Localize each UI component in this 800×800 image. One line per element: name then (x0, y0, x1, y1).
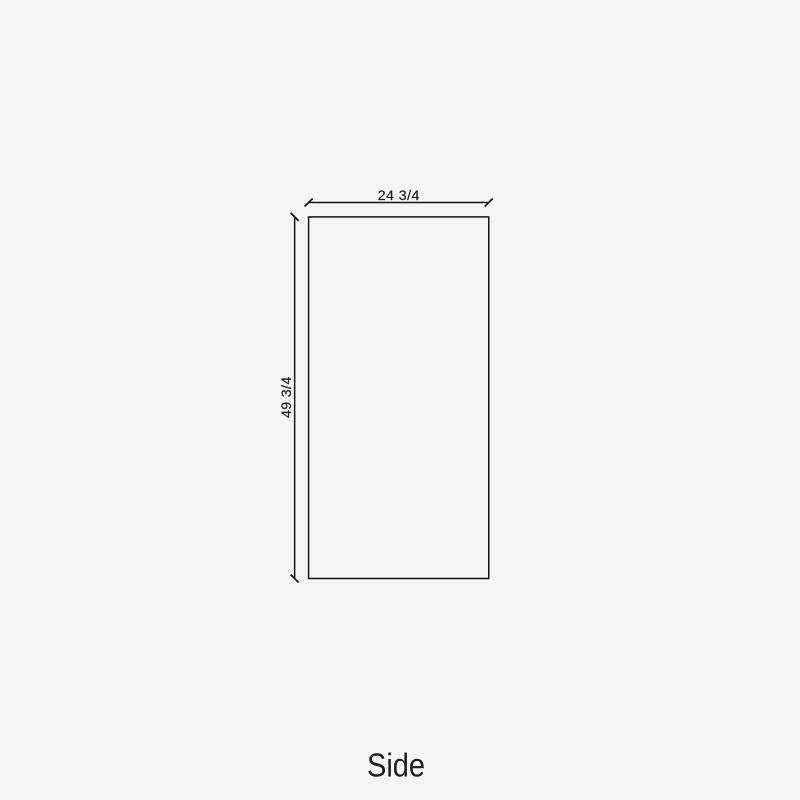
svg-text:49 3/4: 49 3/4 (279, 376, 295, 418)
svg-text:24 3/4: 24 3/4 (378, 188, 420, 204)
svg-text:Side: Side (367, 747, 425, 784)
